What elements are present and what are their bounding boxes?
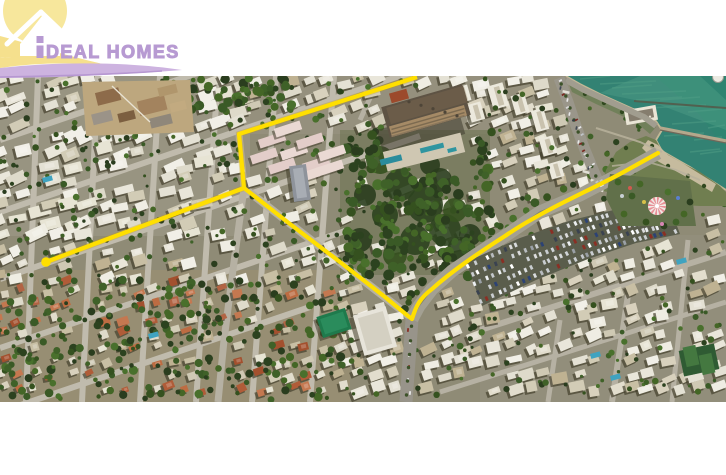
svg-text:DEAL HOMES: DEAL HOMES — [46, 42, 180, 62]
